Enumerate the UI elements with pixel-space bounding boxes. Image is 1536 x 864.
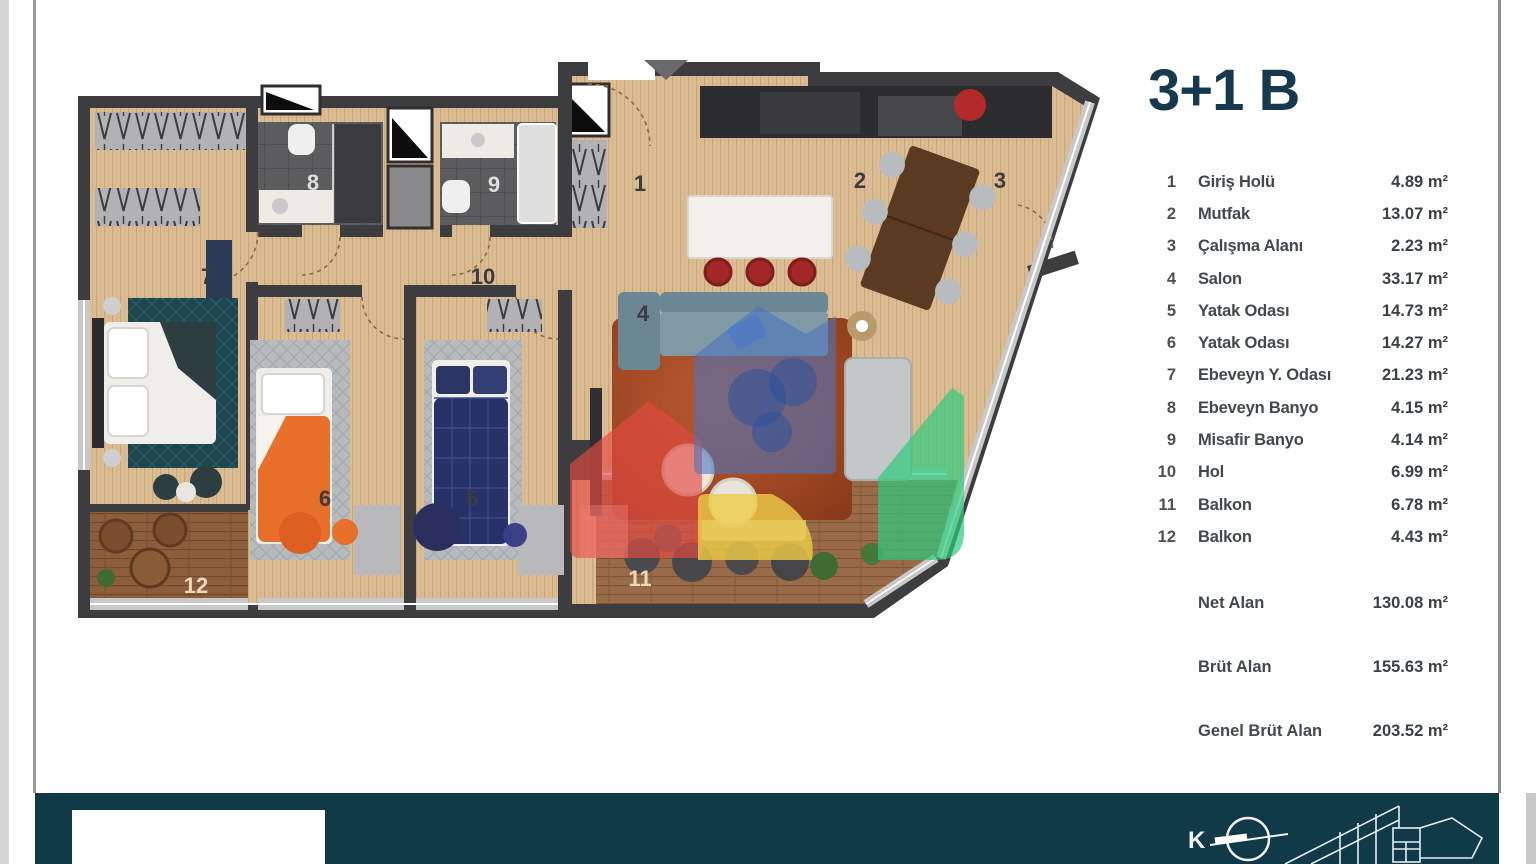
legend-row: 9Misafir Banyo4.14 m² <box>1152 424 1448 456</box>
legend-row: 11Balkon6.78 m² <box>1152 489 1448 521</box>
room-label-4: 4 <box>637 301 650 326</box>
floor-plan-page: 1 2 3 4 5 6 7 8 9 10 11 12 3+1 B 1Giriş <box>0 0 1536 864</box>
floor-plan-drawing: 1 2 3 4 5 6 7 8 9 10 11 12 <box>0 0 1140 680</box>
plan-title: 3+1 B <box>1148 57 1299 124</box>
legend-row: 6Yatak Odası14.27 m² <box>1152 327 1448 359</box>
footer-graphics: K <box>35 793 1499 864</box>
legend-row: 1Giriş Holü4.89 m² <box>1152 166 1448 198</box>
room-label-3: 3 <box>994 168 1006 193</box>
room-label-9: 9 <box>488 172 500 197</box>
room-label-5: 5 <box>466 486 478 511</box>
plant <box>810 552 838 580</box>
footer-bar: K <box>35 793 1499 864</box>
north-compass-icon: K <box>1188 818 1288 860</box>
room-label-10: 10 <box>471 264 495 289</box>
room-legend: 1Giriş Holü4.89 m² 2Mutfak13.07 m² 3Çalı… <box>1152 166 1448 554</box>
room-label-1: 1 <box>634 171 646 196</box>
red-chair <box>954 89 986 121</box>
room-label-12: 12 <box>184 573 208 598</box>
room-label-11: 11 <box>628 566 651 591</box>
building-keyplan-icon <box>1285 806 1482 864</box>
legend-row: 10Hol6.99 m² <box>1152 457 1448 489</box>
plant <box>97 569 115 587</box>
svg-text:K: K <box>1188 827 1206 854</box>
room-label-7: 7 <box>201 264 213 289</box>
room-8-ebeveyn-banyo <box>257 122 383 225</box>
legend-row: 3Çalışma Alanı2.23 m² <box>1152 231 1448 263</box>
legend-row: 7Ebeveyn Y. Odası21.23 m² <box>1152 360 1448 392</box>
right-frame-line <box>1498 0 1501 793</box>
legend-row: 12Balkon4.43 m² <box>1152 521 1448 553</box>
room-label-6: 6 <box>319 486 331 511</box>
total-row-net: Net Alan130.08 m² <box>1152 571 1448 635</box>
total-row-brut: Brüt Alan155.63 m² <box>1152 635 1448 699</box>
total-row-genel-brut: Genel Brüt Alan203.52 m² <box>1152 699 1448 763</box>
legend-row: 8Ebeveyn Banyo4.15 m² <box>1152 392 1448 424</box>
room-label-2: 2 <box>854 168 866 193</box>
bottom-right-edge-strip <box>1526 793 1536 864</box>
legend-row: 2Mutfak13.07 m² <box>1152 198 1448 230</box>
area-totals: Net Alan130.08 m² Brüt Alan155.63 m² Gen… <box>1152 571 1448 763</box>
legend-row: 5Yatak Odası14.73 m² <box>1152 295 1448 327</box>
balcony-12 <box>90 504 248 604</box>
room-label-8: 8 <box>307 170 319 195</box>
legend-row: 4Salon33.17 m² <box>1152 263 1448 295</box>
